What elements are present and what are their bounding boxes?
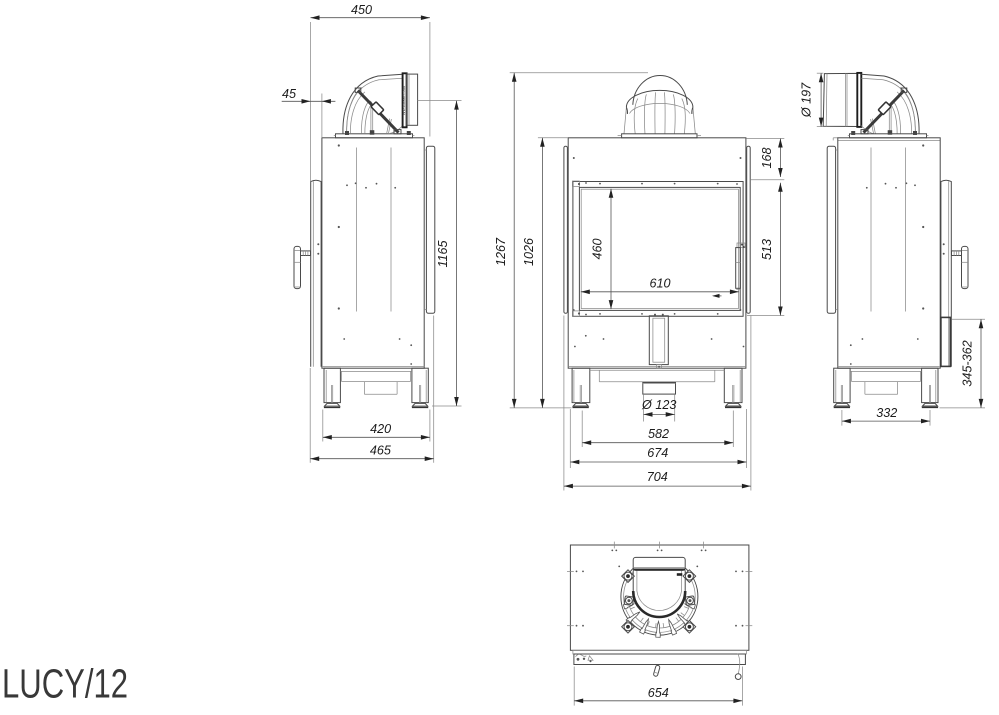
svg-text:450: 450 <box>351 3 372 17</box>
svg-text:654: 654 <box>648 686 669 700</box>
svg-text:513: 513 <box>760 239 774 260</box>
svg-text:1165: 1165 <box>436 239 450 267</box>
svg-text:1026: 1026 <box>522 238 536 266</box>
svg-text:460: 460 <box>591 238 605 259</box>
svg-text:674: 674 <box>647 446 668 460</box>
svg-text:420: 420 <box>370 422 391 436</box>
svg-text:Ø 197: Ø 197 <box>800 82 814 118</box>
svg-text:Ø 123: Ø 123 <box>641 398 676 412</box>
svg-text:704: 704 <box>647 470 668 484</box>
svg-text:610: 610 <box>649 277 670 291</box>
svg-text:LUCY/12: LUCY/12 <box>2 661 128 707</box>
svg-text:WD-15/88/T-500: WD-15/88/T-500 <box>401 85 406 115</box>
svg-text:465: 465 <box>370 444 392 458</box>
svg-text:345-362: 345-362 <box>960 340 974 386</box>
svg-text:168: 168 <box>760 147 774 168</box>
svg-text:332: 332 <box>876 406 897 420</box>
svg-text:582: 582 <box>648 427 669 441</box>
svg-text:45: 45 <box>282 87 297 101</box>
svg-text:1267: 1267 <box>494 237 508 266</box>
